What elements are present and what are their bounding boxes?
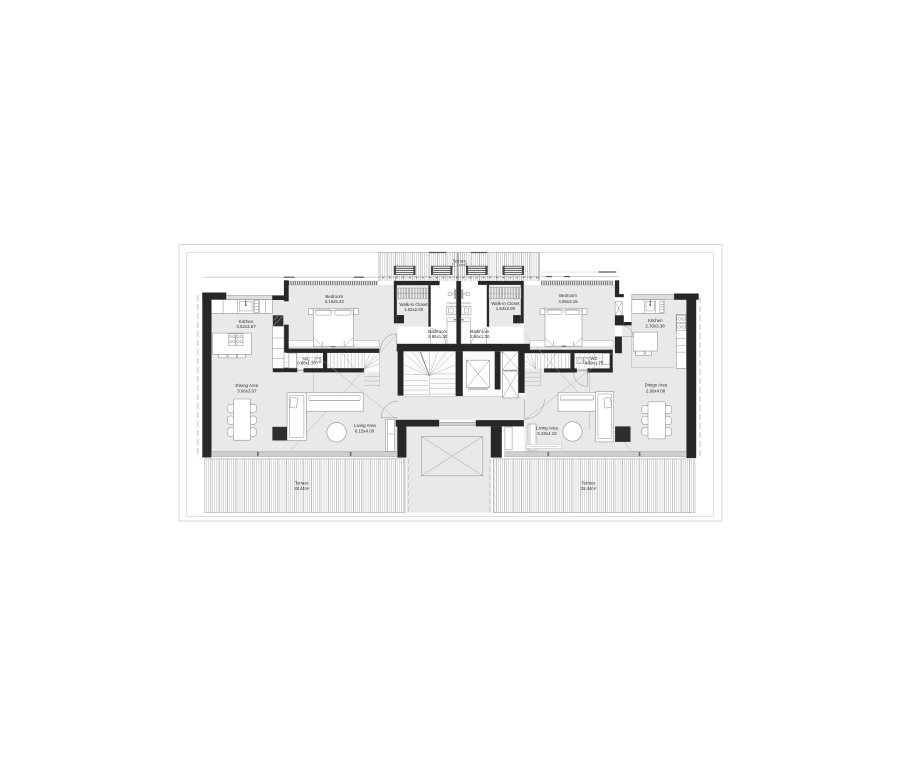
- svg-text:28.44m²: 28.44m²: [294, 486, 310, 491]
- svg-text:6.15x4.00: 6.15x4.00: [355, 428, 375, 433]
- svg-text:Dinign Area: Dinign Area: [645, 383, 668, 388]
- svg-text:(1.34m²): (1.34m²): [452, 263, 468, 268]
- svg-text:2.70x3.38: 2.70x3.38: [645, 323, 665, 328]
- svg-text:3.52x3.67: 3.52x3.67: [236, 324, 256, 329]
- svg-text:6.33x4.10: 6.33x4.10: [537, 431, 557, 436]
- svg-text:Bedroom: Bedroom: [559, 293, 577, 298]
- svg-text:2.86x1.30: 2.86x1.30: [470, 334, 490, 339]
- svg-text:Kitchen: Kitchen: [648, 318, 663, 323]
- svg-text:Living Area: Living Area: [354, 423, 376, 428]
- svg-text:4.86x3.15: 4.86x3.15: [558, 299, 578, 304]
- svg-text:Terrace: Terrace: [295, 481, 310, 486]
- svg-text:3.15x5.32: 3.15x5.32: [325, 299, 345, 304]
- svg-text:0.80x1.70: 0.80x1.70: [297, 361, 316, 366]
- svg-text:Terrace: Terrace: [582, 481, 597, 486]
- svg-text:Living Area: Living Area: [536, 426, 558, 431]
- svg-text:2.90x4.08: 2.90x4.08: [646, 389, 666, 394]
- svg-text:2.86x1.30: 2.86x1.30: [428, 334, 448, 339]
- svg-text:1.64x2.00: 1.64x2.00: [496, 306, 516, 311]
- svg-text:0.80x1.75: 0.80x1.75: [585, 361, 604, 366]
- svg-text:1.62x2.00: 1.62x2.00: [404, 307, 424, 312]
- svg-text:3.66x3.07: 3.66x3.07: [237, 388, 257, 393]
- svg-text:28.44m²: 28.44m²: [581, 486, 597, 491]
